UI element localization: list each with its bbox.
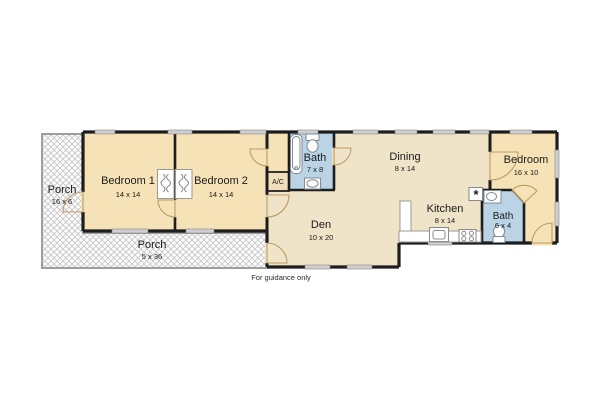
- room-label-bath-main: Bath: [304, 152, 327, 164]
- toilet-icon: [306, 134, 319, 152]
- room-label-bedroom-2: Bedroom 2: [194, 175, 248, 187]
- bathtub-icon: [291, 135, 303, 174]
- room-dims-dining: 8 x 14: [395, 164, 415, 173]
- room-dims-porch-bottom: 5 x 36: [142, 252, 162, 261]
- room-label-dining: Dining: [389, 151, 420, 163]
- room-dims-bedroom-3: 16 x 10: [514, 168, 539, 177]
- room-dims-porch-left: 16 x 6: [52, 197, 72, 206]
- room-label-bedroom-1: Bedroom 1: [101, 175, 155, 187]
- room-dims-den: 10 x 20: [309, 233, 334, 242]
- room-label-bedroom-3: Bedroom: [504, 154, 549, 166]
- room-label-porch-bottom: Porch: [138, 239, 167, 251]
- room-label-ac-closet: A/C: [272, 179, 284, 186]
- room-dims-bedroom-2: 14 x 14: [209, 190, 234, 199]
- room-label-den: Den: [311, 219, 331, 231]
- room-dims-bath-small: 6 x 4: [495, 221, 511, 230]
- floor-plan-page: Porch 16 x 6 Bedroom 1 14 x 14 Bedroom 2…: [0, 0, 600, 400]
- room-dims-bath-main: 7 x 8: [307, 165, 323, 174]
- disclaimer-text: For guidance only: [251, 273, 311, 282]
- room-label-kitchen: Kitchen: [427, 203, 464, 215]
- room-dims-kitchen: 8 x 14: [435, 216, 455, 225]
- room-dims-bedroom-1: 14 x 14: [116, 190, 141, 199]
- kitchen-sink-icon: [430, 228, 449, 242]
- room-label-porch-left: Porch: [48, 184, 77, 196]
- stove-icon: [459, 230, 476, 243]
- sink-icon: [305, 178, 321, 189]
- floor-plan: Porch 16 x 6 Bedroom 1 14 x 14 Bedroom 2…: [0, 0, 600, 400]
- bath2-sink-icon: [484, 191, 501, 204]
